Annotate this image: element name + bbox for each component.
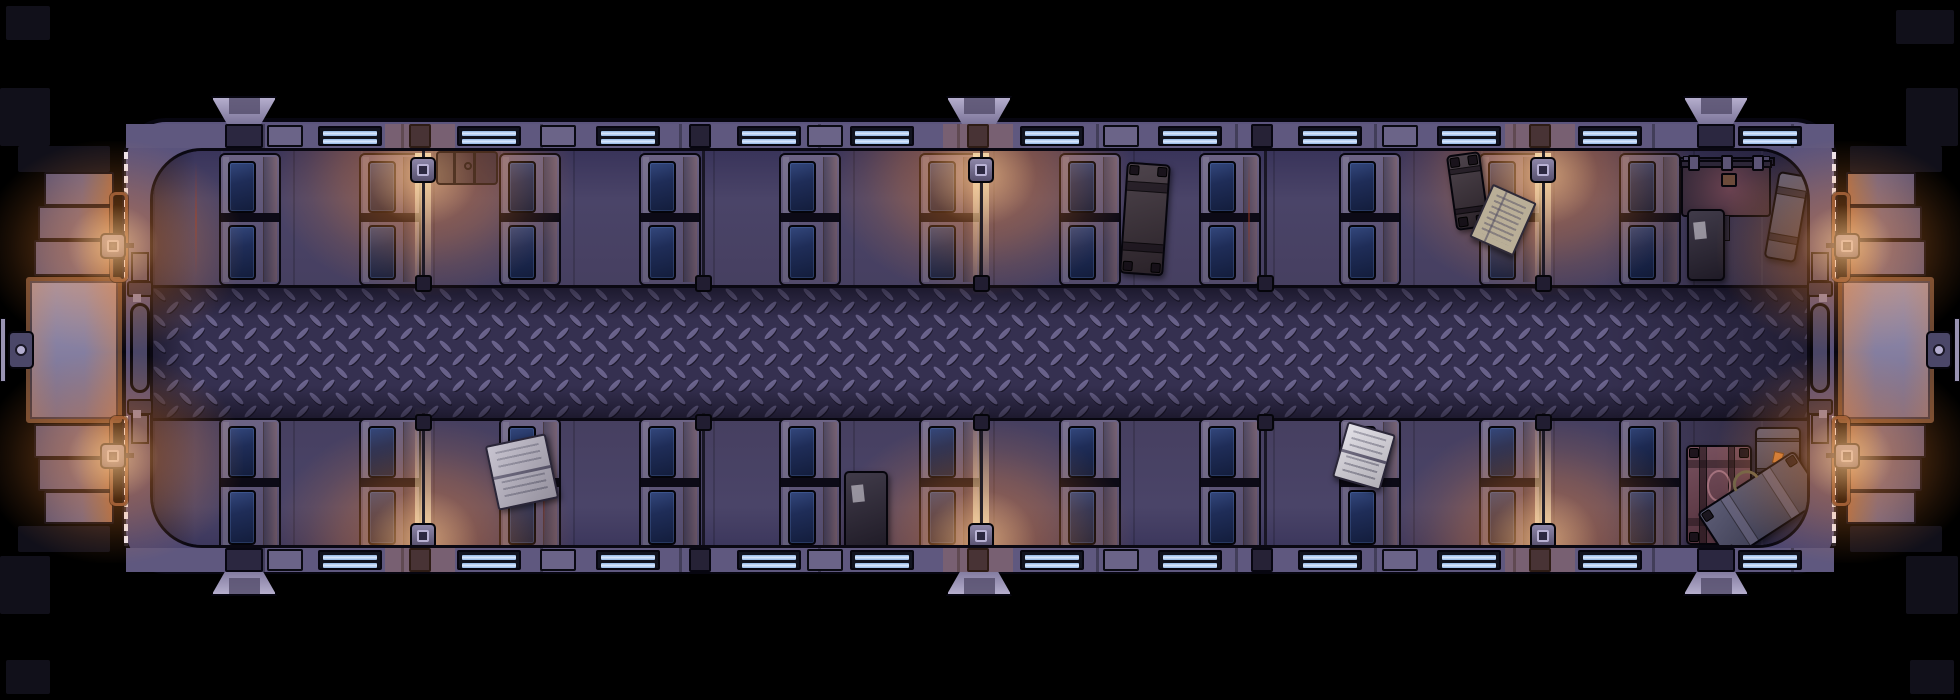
- window: [318, 126, 382, 146]
- lamp-glow-core: [921, 148, 1041, 230]
- seat-cushion: [1488, 490, 1516, 545]
- lamp-head: [968, 523, 994, 548]
- suitcase-handle: [1727, 465, 1758, 492]
- seat-cushion: [1628, 225, 1656, 280]
- bench-back-divider: [1341, 478, 1399, 487]
- lamp-beam: [1535, 153, 1551, 295]
- bench-booth: [1199, 153, 1261, 286]
- vestibule-step: [38, 206, 112, 240]
- bench-booth: [1059, 418, 1121, 548]
- bench-frame-left-bar: [503, 157, 509, 282]
- lamp-pole: [1264, 413, 1267, 548]
- bench-booth: [919, 153, 981, 286]
- lamp-mount-block: [967, 124, 989, 148]
- lamp-pole: [980, 151, 983, 289]
- lamp-foot: [1535, 275, 1552, 292]
- window-glass-bar: [1303, 139, 1357, 144]
- seat-cushion: [368, 225, 396, 280]
- coupler-knob: [1926, 331, 1952, 369]
- roof-vent: [1683, 96, 1749, 126]
- window-glass-bar: [1583, 555, 1637, 560]
- window-glass-bar: [1163, 139, 1217, 144]
- bench-back-divider: [1481, 213, 1539, 222]
- window-glass-bar: [1163, 131, 1217, 136]
- trunk-corner-plate: [1701, 509, 1715, 523]
- bench-back-divider: [1621, 478, 1679, 487]
- end-door-handle-pill: [130, 303, 150, 393]
- seat-cushion: [1208, 225, 1236, 280]
- seat-band-top-floor: [153, 151, 1807, 288]
- outside-slab: [18, 146, 110, 172]
- wall-vent-block: [1697, 124, 1735, 148]
- window-glass-bar: [323, 563, 377, 568]
- trunk-corner-plate: [1739, 532, 1749, 542]
- bench-back-divider: [501, 478, 559, 487]
- seat-cushion: [1068, 225, 1096, 280]
- bench-booth: [1339, 418, 1401, 548]
- bench-frame-right-bar: [683, 422, 697, 547]
- window-glass-bar: [1025, 139, 1079, 144]
- lamp-head-inner: [975, 530, 987, 542]
- bench-booth: [639, 418, 701, 548]
- bench-back-divider: [1201, 478, 1259, 487]
- wall-strip-lamp-tint: [1505, 548, 1575, 572]
- outside-slab: [1906, 88, 1958, 146]
- bench-frame-right-bar: [543, 157, 557, 282]
- trunk-strap: [1127, 181, 1168, 193]
- window: [596, 126, 660, 146]
- wall-post: [807, 549, 843, 571]
- window-glass-bar: [742, 131, 796, 136]
- window-glass-bar: [323, 131, 377, 136]
- lamp-foot: [1535, 414, 1552, 431]
- lid-hanging-rod: [1724, 215, 1730, 241]
- floor-panel-joints: [153, 151, 1807, 288]
- bench-booth: [219, 418, 281, 548]
- left-end-shadow: [153, 151, 195, 545]
- seat-cushion: [928, 161, 956, 213]
- seat-cushion: [1488, 426, 1516, 478]
- outside-slab: [1850, 146, 1942, 172]
- book-text-lines: [501, 472, 548, 501]
- seat-cushion: [228, 161, 256, 213]
- seat-cushion: [1348, 490, 1376, 545]
- seat-cushion: [788, 225, 816, 280]
- trunk-strap-v: [1699, 447, 1706, 543]
- bench-frame-right-bar: [1663, 422, 1677, 547]
- lamp-foot: [415, 414, 432, 431]
- bench-frame-left-bar: [1203, 422, 1209, 547]
- window-glass-bar: [742, 139, 796, 144]
- outside-slab: [0, 88, 50, 146]
- bench-frame-left-bar: [1343, 422, 1349, 547]
- lamp-foot: [973, 275, 990, 292]
- lamp-pole: [1264, 151, 1267, 289]
- window-glass-bar: [855, 131, 909, 136]
- bench-frame-left-bar: [923, 157, 929, 282]
- window: [1298, 550, 1362, 570]
- bench-frame-right-bar: [1383, 422, 1397, 547]
- window-glass-bar: [742, 563, 796, 568]
- door-light-leak: [124, 152, 128, 282]
- window-glass-bar: [1442, 139, 1496, 144]
- bench-frame-right-bar: [1383, 157, 1397, 282]
- wall-strip-lamp-tint: [943, 124, 1013, 148]
- seat-cushion: [928, 225, 956, 280]
- luggage-label: [1693, 221, 1707, 239]
- bench-frame-left-bar: [223, 157, 229, 282]
- lamp-pole: [422, 151, 425, 289]
- bench-frame-left-bar: [783, 157, 789, 282]
- luggage-book-open: [485, 433, 559, 510]
- window-glass-bar: [1025, 131, 1079, 136]
- bench-back-divider: [361, 213, 419, 222]
- window-glass-bar: [1303, 563, 1357, 568]
- trunk-corner-plate: [1150, 263, 1161, 274]
- bench-frame-right-bar: [543, 422, 557, 547]
- book-fold: [493, 465, 550, 480]
- aisle-edge-line: [153, 285, 1807, 288]
- gangway-pipe-frame: [1832, 192, 1850, 282]
- door-light-leak: [1832, 416, 1836, 546]
- window-glass-bar: [1442, 131, 1496, 136]
- roof-vent-inner: [229, 578, 260, 594]
- bench-booth: [219, 153, 281, 286]
- bench-frame-right-bar: [1663, 157, 1677, 282]
- end-lamp-glow-core: [63, 201, 163, 291]
- window-glass-bar: [855, 555, 909, 560]
- gangway-pipe-frame: [1832, 416, 1850, 506]
- book-text-lines: [1341, 455, 1379, 481]
- end-door-column: [131, 414, 149, 444]
- luggage-bay-shadow: [1603, 151, 1810, 545]
- window: [1020, 550, 1084, 570]
- lamp-glow: [831, 421, 1131, 548]
- lamp-head-inner: [1537, 164, 1549, 176]
- trunk-oval-label: [1707, 470, 1731, 502]
- outside-slab: [0, 556, 50, 614]
- vestibule-step: [1846, 424, 1926, 458]
- seat-cushion: [648, 490, 676, 545]
- bench-frame-left-bar: [1623, 157, 1629, 282]
- end-lamp-arm: [120, 243, 134, 248]
- seat-cushion: [928, 490, 956, 545]
- seat-cushion: [228, 490, 256, 545]
- bench-frame-right-bar: [403, 422, 417, 547]
- window-glass-bar: [1743, 555, 1797, 560]
- lamp-glow-core: [1483, 148, 1603, 230]
- luggage-trunk: [1446, 151, 1490, 231]
- lamp-glow: [831, 148, 1131, 295]
- window-glass-bar: [1303, 131, 1357, 136]
- vestibule-step: [1848, 206, 1922, 240]
- bench-frame-right-bar: [263, 422, 277, 547]
- window: [1578, 126, 1642, 146]
- seat-cushion: [1068, 490, 1096, 545]
- end-door-connector: [133, 294, 141, 302]
- wall-strip: [126, 548, 1834, 572]
- lamp-beam: [415, 407, 431, 548]
- bench-frame-left-bar: [223, 422, 229, 547]
- end-lamp-head-inner: [1841, 240, 1853, 252]
- window-glass-bar: [601, 131, 655, 136]
- window-glass-bar: [1442, 563, 1496, 568]
- bench-back-divider: [1061, 213, 1119, 222]
- window-glass-bar: [462, 131, 516, 136]
- lamp-mount-block: [1251, 124, 1273, 148]
- lamp-pole: [1542, 151, 1545, 289]
- vestibule-step: [1846, 172, 1916, 206]
- lamp-glow: [1393, 148, 1693, 295]
- lamp-head-inner: [417, 164, 429, 176]
- window: [737, 550, 801, 570]
- roof-vent: [946, 566, 1012, 596]
- luggage-rail: [1679, 157, 1775, 166]
- window-glass-bar: [601, 139, 655, 144]
- lamp-glow-core: [921, 486, 1041, 548]
- bench-frame-right-bar: [823, 422, 837, 547]
- outside-slab: [1910, 660, 1954, 694]
- window-glass-bar: [462, 139, 516, 144]
- seat-cushion: [1068, 426, 1096, 478]
- bench-booth: [499, 153, 561, 286]
- lid-top-rail: [1680, 160, 1772, 168]
- wall-post: [1382, 549, 1418, 571]
- window: [1020, 126, 1084, 146]
- window-glass-bar: [1163, 555, 1217, 560]
- wall-post: [1103, 549, 1139, 571]
- bench-frame-left-bar: [1203, 157, 1209, 282]
- wall-strip: [126, 124, 1834, 148]
- gangway-platform: [1838, 277, 1934, 423]
- seat-cushion: [648, 225, 676, 280]
- lamp-foot: [1257, 414, 1274, 431]
- seat-cushion: [228, 426, 256, 478]
- lamp-foot: [695, 275, 712, 292]
- window: [850, 126, 914, 146]
- bench-frame-left-bar: [1063, 422, 1069, 547]
- lamp-glow-core: [1483, 486, 1603, 548]
- trunk-corner-plate: [1475, 214, 1486, 225]
- window: [457, 126, 521, 146]
- trunk-strap-h: [1688, 460, 1750, 468]
- seat-cushion: [1628, 426, 1656, 478]
- seat-cushion: [1628, 161, 1656, 213]
- trunk-corner-plate: [1458, 216, 1469, 227]
- luggage-bigtrunk-lid: [1681, 165, 1771, 217]
- end-door-handle-pill: [1810, 303, 1830, 393]
- trunk-strap-v: [1728, 447, 1735, 543]
- lamp-mount-block: [689, 124, 711, 148]
- window-glass-bar: [601, 555, 655, 560]
- end-door-hinge: [127, 399, 153, 415]
- bench-frame-right-bar: [263, 157, 277, 282]
- window: [1158, 126, 1222, 146]
- bench-frame-left-bar: [783, 422, 789, 547]
- aisle-plate-texture: [153, 288, 1810, 418]
- lid-latch: [1721, 173, 1737, 187]
- seat-cushion: [1628, 490, 1656, 545]
- bench-back-divider: [921, 213, 979, 222]
- trunk-strap: [1123, 241, 1164, 253]
- bench-back-divider: [1481, 478, 1539, 487]
- car-interior-floor: [150, 148, 1810, 548]
- end-door-hinge: [1807, 281, 1833, 297]
- rail-bracket: [1762, 156, 1770, 168]
- bench-frame-left-bar: [1483, 157, 1489, 282]
- lamp-mount-block: [409, 548, 431, 572]
- seat-cushion: [1208, 490, 1236, 545]
- end-lamp-head-inner: [107, 450, 119, 462]
- roof-vent-inner: [964, 578, 995, 594]
- end-lamp-head-inner: [1841, 450, 1853, 462]
- seat-cushion: [508, 225, 536, 280]
- coupler-plate: [1954, 318, 1960, 382]
- gangway-pipe-frame: [110, 416, 128, 506]
- seat-cushion: [648, 426, 676, 478]
- bench-frame-right-bar: [683, 157, 697, 282]
- lamp-head: [410, 157, 436, 183]
- outline-strap: [453, 153, 456, 183]
- end-lamp-glow: [1717, 353, 1960, 563]
- bench-frame-right-bar: [1103, 422, 1117, 547]
- lamp-pole: [1542, 413, 1545, 548]
- lid-clamp: [1688, 155, 1700, 171]
- bench-frame-right-bar: [1243, 157, 1257, 282]
- luggage-trunk: [1755, 427, 1801, 485]
- window-glass-bar: [855, 563, 909, 568]
- coupler-plate: [0, 318, 6, 382]
- vestibule-step: [44, 491, 114, 524]
- folio-lines: [1480, 195, 1526, 245]
- trunk-corner-plate: [1129, 165, 1140, 176]
- lamp-pole: [702, 413, 705, 548]
- outline-latch: [464, 162, 472, 170]
- end-door-hinge: [1807, 399, 1833, 415]
- rail-bracket: [1683, 156, 1691, 168]
- bench-booth: [1339, 153, 1401, 286]
- end-lamp-head: [100, 443, 126, 469]
- trunk-corner-plate: [1785, 454, 1799, 468]
- book-page-shade: [487, 436, 557, 509]
- trunk-corner-plate: [1689, 448, 1699, 458]
- window-glass-bar: [462, 555, 516, 560]
- seat-cushion: [1208, 426, 1236, 478]
- door-light-leak: [124, 416, 128, 546]
- vestibule-step: [44, 172, 114, 206]
- window: [1578, 550, 1642, 570]
- lamp-mount-block: [1529, 548, 1551, 572]
- bench-booth: [359, 418, 421, 548]
- seat-cushion: [368, 490, 396, 545]
- seat-cushion: [1488, 161, 1516, 213]
- lid-clamp: [1752, 155, 1764, 171]
- bench-back-divider: [1621, 213, 1679, 222]
- wall-post: [267, 549, 303, 571]
- lamp-head: [1530, 523, 1556, 548]
- window: [1437, 126, 1501, 146]
- train-car-map: [0, 0, 1960, 700]
- bench-booth: [779, 153, 841, 286]
- roof-vent: [946, 96, 1012, 126]
- window: [1738, 126, 1802, 146]
- end-lamp-head: [1834, 443, 1860, 469]
- book-text-lines: [1348, 430, 1386, 456]
- seat-cushion: [1348, 225, 1376, 280]
- lamp-head: [1530, 157, 1556, 183]
- bench-back-divider: [781, 478, 839, 487]
- end-lamp-glow: [0, 353, 243, 563]
- aisle-edge-line: [153, 418, 1807, 421]
- window: [850, 550, 914, 570]
- lamp-mount-block: [1251, 548, 1273, 572]
- seat-cushion: [788, 426, 816, 478]
- trunk-corner-plate: [1157, 167, 1168, 178]
- suitcase-strap: [1720, 494, 1759, 545]
- luggage-book-open: [1332, 421, 1396, 491]
- rust-streak: [1248, 158, 1250, 276]
- window-glass-bar: [1743, 139, 1797, 144]
- bench-frame-left-bar: [1623, 422, 1629, 547]
- trunk-strap: [1769, 233, 1798, 245]
- vestibule-step: [1846, 240, 1926, 276]
- bench-frame-left-bar: [363, 422, 369, 547]
- end-lamp-arm: [1826, 453, 1840, 458]
- wall-strip-lamp-tint: [1505, 124, 1575, 148]
- luggage-trunk: [1687, 209, 1725, 281]
- trunk-corner-plate: [1724, 544, 1738, 548]
- bench-frame-right-bar: [823, 157, 837, 282]
- outline-strap: [473, 153, 476, 183]
- bench-booth: [639, 153, 701, 286]
- end-lamp-glow-core: [1797, 413, 1897, 503]
- end-lamp-arm: [120, 453, 134, 458]
- trunk-strap-h: [1688, 518, 1750, 526]
- bench-back-divider: [501, 213, 559, 222]
- roof-vent-inner: [1701, 98, 1732, 114]
- end-lamp-head-inner: [107, 240, 119, 252]
- book-text-lines: [495, 443, 542, 472]
- window: [1298, 126, 1362, 146]
- window-glass-bar: [855, 139, 909, 144]
- bench-frame-right-bar: [1243, 422, 1257, 547]
- lamp-pole: [702, 151, 705, 289]
- wall-post: [1382, 125, 1418, 147]
- window-glass-bar: [1025, 555, 1079, 560]
- window: [1437, 550, 1501, 570]
- lamp-head: [968, 157, 994, 183]
- bench-frame-left-bar: [923, 422, 929, 547]
- gangway-pipe-frame: [110, 192, 128, 282]
- seat-band-bottom-floor: [153, 418, 1807, 548]
- window-glass-bar: [1025, 563, 1079, 568]
- luggage-label: [851, 485, 865, 503]
- lamp-foot: [695, 414, 712, 431]
- end-lamp-arm: [1826, 243, 1840, 248]
- window-glass-bar: [1163, 563, 1217, 568]
- window-glass-bar: [323, 555, 377, 560]
- window: [318, 550, 382, 570]
- end-door-connector: [1819, 294, 1827, 302]
- trunk-corner-plate: [1739, 448, 1749, 458]
- lamp-mount-block: [1529, 124, 1551, 148]
- floor-panel-joints: [153, 418, 1807, 548]
- lamp-glow: [1393, 421, 1693, 548]
- bench-frame-right-bar: [1523, 157, 1537, 282]
- wall-post: [267, 125, 303, 147]
- trunk-corner-plate: [1689, 532, 1699, 542]
- window-glass-bar: [601, 563, 655, 568]
